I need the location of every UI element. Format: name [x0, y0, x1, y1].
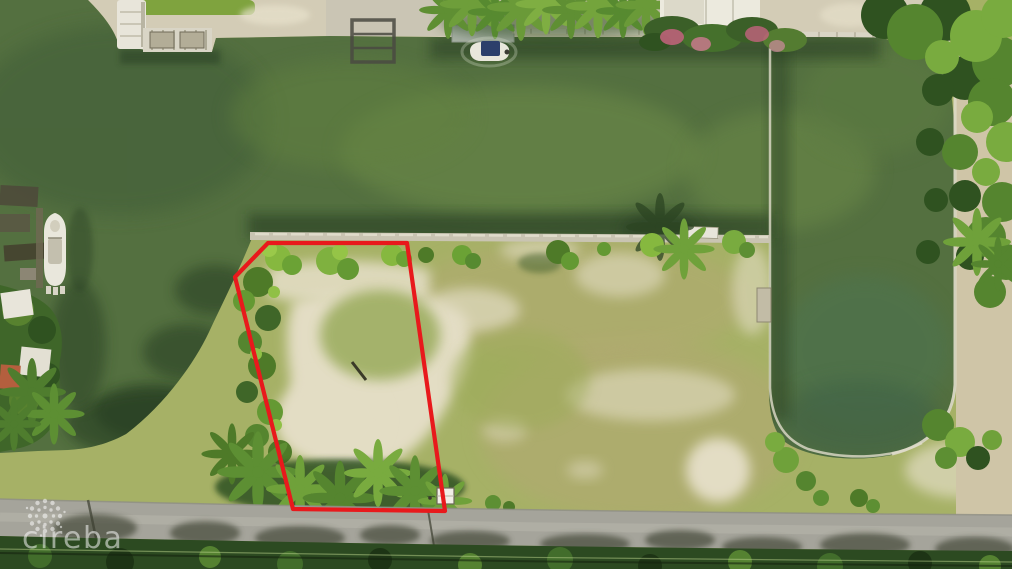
bougainvillea — [660, 29, 684, 45]
watermark-text: cireba — [22, 521, 123, 556]
boat-canopy — [481, 41, 500, 56]
outboard-motor — [505, 50, 510, 55]
aerial-photo-canvas: cireba — [0, 0, 1012, 569]
canal-dock — [757, 288, 771, 322]
aerial-photo: cireba — [0, 0, 1012, 569]
house-roof-white — [0, 289, 33, 319]
